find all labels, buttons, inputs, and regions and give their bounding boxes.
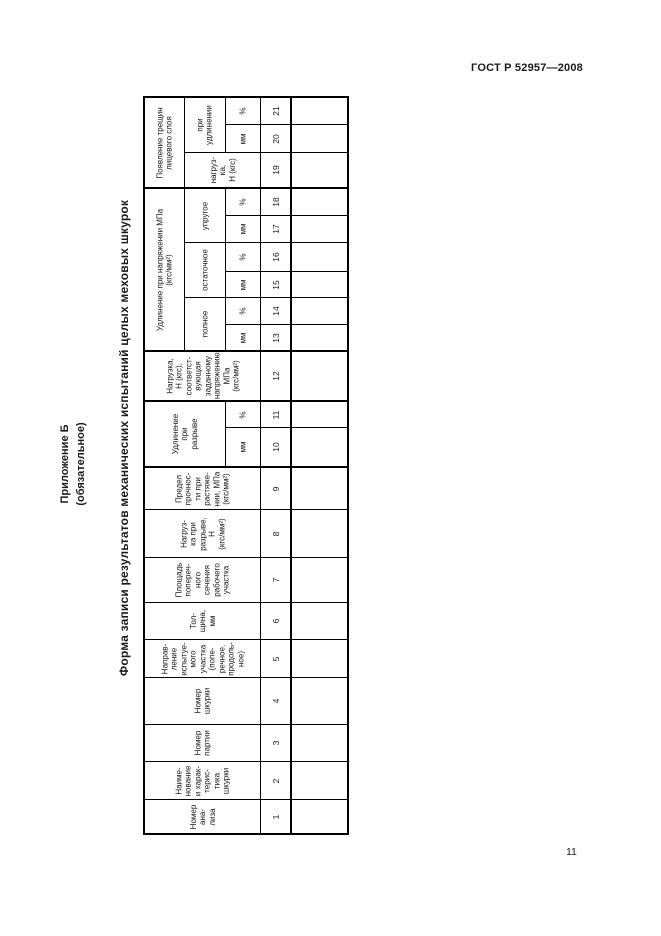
data-cell — [292, 800, 347, 833]
header-col-4: Номершкурки — [145, 678, 261, 725]
group-crack-appearance: Появление трещинлицевого слоя — [145, 98, 185, 189]
column-number-cell-label: 10 — [270, 429, 280, 465]
unit-col-13-label: мм — [238, 326, 247, 349]
header-col-6-label: Тол-щина,мм — [188, 605, 216, 638]
data-cell — [292, 325, 347, 352]
sub-full-label: полное — [200, 299, 209, 349]
header-col-12-label: Нагрузка,Н (кгс),соответст-вующаязаданно… — [165, 353, 241, 399]
header-col-9-label: Пределпрочнос-ти прирастяже-нии, МПа(кгс… — [174, 470, 231, 508]
header-col-1-label: Номерана-лиза — [188, 802, 216, 831]
column-number-cell-label: 1 — [270, 802, 280, 831]
column-number-cell-label: 13 — [270, 326, 280, 349]
doc-code: ГОСТ Р 52957—2008 — [471, 62, 583, 74]
data-cell — [292, 678, 347, 725]
column-number-cell-label: 3 — [270, 727, 280, 760]
column-number-cell-label: 14 — [270, 300, 280, 323]
appendix-subtitle: (обязательное) — [74, 422, 90, 505]
unit-col-10-label: мм — [238, 429, 247, 465]
data-cell — [292, 352, 347, 402]
header-col-7: Площадьпопереч-ногосечениярабочегоучастк… — [145, 558, 261, 603]
unit-col-11-label: % — [238, 404, 247, 426]
column-number-cell: 7 — [261, 558, 292, 603]
data-cell — [292, 603, 347, 640]
column-number-cell: 13 — [261, 325, 292, 352]
column-number-cell: 16 — [261, 243, 292, 272]
sub-residual-label: остаточное — [200, 245, 209, 296]
column-number-cell-label: 9 — [270, 470, 280, 508]
header-col-4-label: Номершкурки — [193, 680, 212, 723]
column-number-cell-label: 15 — [270, 274, 280, 296]
unit-col-14-label: % — [238, 300, 247, 323]
column-number-cell: 19 — [261, 153, 292, 189]
column-number-cell-label: 21 — [270, 100, 280, 123]
sub-residual: остаточное — [185, 243, 226, 298]
column-number-cell: 17 — [261, 216, 292, 243]
unit-col-21: % — [226, 98, 261, 125]
data-cell — [292, 189, 347, 216]
column-number-cell: 6 — [261, 603, 292, 640]
column-number-cell: 18 — [261, 189, 292, 216]
data-cell — [292, 762, 347, 800]
data-cell — [292, 640, 347, 678]
column-number-cell: 20 — [261, 125, 292, 153]
unit-col-16: % — [226, 243, 261, 272]
unit-col-14: % — [226, 298, 261, 325]
data-cell — [292, 125, 347, 153]
unit-col-20-label: мм — [238, 127, 247, 151]
column-number-cell: 5 — [261, 640, 292, 678]
unit-col-15: мм — [226, 272, 261, 298]
document-page: ГОСТ Р 52957—2008 Приложение Б (обязател… — [0, 0, 661, 936]
column-number-cell: 10 — [261, 428, 292, 468]
column-number-cell: 9 — [261, 468, 292, 510]
column-number-cell-label: 19 — [270, 154, 280, 186]
header-col-1: Номерана-лиза — [145, 800, 261, 833]
group-elongation-at-break-label: Удлинениеприразрыве — [171, 403, 199, 465]
appendix-title: Приложение Б — [58, 422, 74, 505]
header-col-8: Нагруз-ка приразрыве,Н(кгс/мм²) — [145, 510, 261, 558]
column-number-cell-label: 4 — [270, 680, 280, 723]
column-number-cell: 1 — [261, 800, 292, 833]
column-number-cell-label: 6 — [270, 605, 280, 638]
header-col-2: Наиме-нованиеи харак-терис-тикашкурки — [145, 762, 261, 800]
unit-col-16-label: % — [238, 245, 247, 270]
form-title: Форма записи результатов механических ис… — [117, 200, 131, 676]
sub-at-elongation-label: приудлинении — [196, 100, 215, 151]
results-table: Появление трещинлицевого слояприудлинени… — [143, 96, 349, 835]
column-number-cell: 14 — [261, 298, 292, 325]
unit-col-18-label: % — [238, 191, 247, 214]
column-number-cell: 21 — [261, 98, 292, 125]
data-cell — [292, 216, 347, 243]
data-cell — [292, 428, 347, 468]
unit-col-17-label: мм — [238, 218, 247, 241]
column-number-cell: 3 — [261, 725, 292, 762]
header-col-8-label: Нагруз-ка приразрыве,Н(кгс/мм²) — [179, 512, 226, 556]
column-number-cell-label: 17 — [270, 218, 280, 241]
group-elongation-at-stress-label: Удлинение при напряжении МПа(кгс/мм²) — [155, 190, 174, 349]
appendix-heading: Приложение Б (обязательное) — [58, 422, 90, 505]
sub-at-elongation: приудлинении — [185, 98, 226, 153]
header-col-9: Пределпрочнос-ти прирастяже-нии, МПа(кгс… — [145, 468, 261, 510]
header-col-6: Тол-щина,мм — [145, 603, 261, 640]
header-col-12: Нагрузка,Н (кгс),соответст-вующаязаданно… — [145, 352, 261, 402]
column-number-cell: 4 — [261, 678, 292, 725]
unit-col-13: мм — [226, 325, 261, 352]
unit-col-11: % — [226, 402, 261, 428]
data-cell — [292, 243, 347, 272]
unit-col-18: % — [226, 189, 261, 216]
header-col-2-label: Наиме-нованиеи харак-терис-тикашкурки — [174, 764, 231, 798]
header-col-5: Направ-лениеиспытуе-могоучастка(попе-реч… — [145, 640, 261, 678]
column-number-cell-label: 12 — [270, 353, 280, 399]
column-number-cell-label: 20 — [270, 127, 280, 151]
group-crack-appearance-label: Появление трещинлицевого слоя — [155, 99, 174, 186]
column-number-cell: 12 — [261, 352, 292, 402]
data-cell — [292, 510, 347, 558]
column-number-cell-label: 18 — [270, 191, 280, 214]
group-elongation-at-break: Удлинениеприразрыве — [145, 402, 226, 468]
header-col-5-label: Направ-лениеиспытуе-могоучастка(попе-реч… — [160, 642, 245, 676]
unit-col-21-label: % — [238, 100, 247, 123]
unit-col-10: мм — [226, 428, 261, 468]
column-number-cell: 8 — [261, 510, 292, 558]
data-cell — [292, 272, 347, 298]
column-number-cell-label: 16 — [270, 245, 280, 270]
column-number-cell-label: 2 — [270, 764, 280, 798]
data-cell — [292, 725, 347, 762]
header-col-7-label: Площадьпопереч-ногосечениярабочегоучастк… — [174, 560, 231, 601]
sub-load-col-19-label: нагруз-ка,Н (кгс) — [208, 154, 236, 186]
header-col-3-label: Номерпартии — [193, 727, 212, 760]
column-number-cell: 2 — [261, 762, 292, 800]
sub-elastic-label: упругое — [200, 191, 209, 241]
unit-col-15-label: мм — [238, 274, 247, 296]
header-col-3: Номерпартии — [145, 725, 261, 762]
data-cell — [292, 298, 347, 325]
data-cell — [292, 98, 347, 125]
unit-col-17: мм — [226, 216, 261, 243]
column-number-cell: 11 — [261, 402, 292, 428]
page-number: 11 — [566, 846, 577, 858]
unit-col-20: мм — [226, 125, 261, 153]
data-cell — [292, 402, 347, 428]
column-number-cell-label: 7 — [270, 560, 280, 601]
data-cell — [292, 558, 347, 603]
data-cell — [292, 468, 347, 510]
column-number-cell-label: 5 — [270, 642, 280, 676]
column-number-cell-label: 11 — [270, 404, 280, 426]
column-number-cell: 15 — [261, 272, 292, 298]
group-elongation-at-stress: Удлинение при напряжении МПа(кгс/мм²) — [145, 189, 185, 352]
column-number-cell-label: 8 — [270, 512, 280, 556]
sub-full: полное — [185, 298, 226, 352]
sub-load-col-19: нагруз-ка,Н (кгс) — [185, 153, 261, 189]
data-cell — [292, 153, 347, 189]
sub-elastic: упругое — [185, 189, 226, 243]
